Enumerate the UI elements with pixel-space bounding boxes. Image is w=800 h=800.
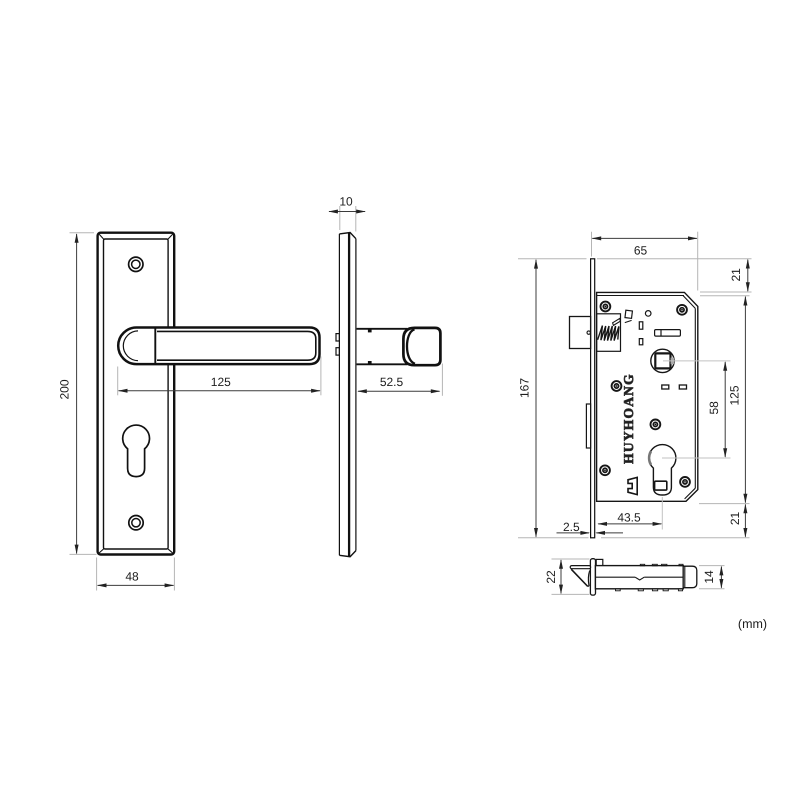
svg-text:52.5: 52.5 [380,375,404,389]
svg-text:14: 14 [702,570,716,584]
svg-text:125: 125 [728,385,742,405]
svg-text:43.5: 43.5 [617,510,641,524]
svg-text:48: 48 [125,570,139,584]
svg-text:167: 167 [517,378,531,398]
svg-text:(mm): (mm) [738,617,767,631]
svg-text:22: 22 [544,570,558,584]
svg-text:58: 58 [707,401,721,415]
svg-text:HUYHOANG: HUYHOANG [621,373,636,464]
svg-text:21: 21 [729,268,743,282]
svg-text:65: 65 [634,244,648,258]
svg-text:10: 10 [339,195,353,209]
svg-text:125: 125 [211,375,231,389]
svg-text:200: 200 [58,379,72,399]
svg-text:2.5: 2.5 [563,520,580,534]
svg-text:21: 21 [728,512,742,526]
